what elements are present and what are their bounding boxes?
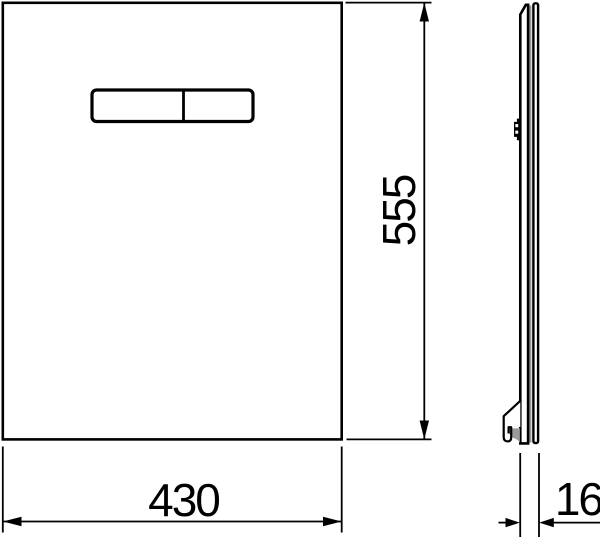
side-view [504,3,539,443]
arrowhead-up-icon [420,3,429,22]
carrier-strip-shading [529,6,531,443]
arrowhead-inward-left-icon [539,518,554,527]
dimension-depth: 16 [499,453,600,537]
technical-drawing-canvas: 555 430 [0,0,600,539]
dimension-label-depth: 16 [555,473,600,525]
front-view [3,3,342,440]
bottom-hook-bracket [504,401,521,443]
arrowhead-right-icon [323,517,342,526]
arrowhead-left-icon [3,517,22,526]
glass-plate-profile [520,5,528,444]
front-panel-outline [3,3,342,440]
technical-drawing: 555 430 [0,0,600,539]
dimension-height: 555 [346,3,432,440]
flush-button-panel [92,90,253,122]
dimension-label-width: 430 [148,474,219,526]
fixing-clip-body [514,119,520,141]
rear-rail-profile [533,3,538,443]
fixing-clip [514,119,520,141]
dimension-label-height: 555 [373,175,425,246]
arrowhead-down-icon [420,421,429,440]
clip-notch-top [515,124,518,127]
clip-notch-bottom [515,131,518,134]
dimension-width: 430 [3,447,342,533]
arrowhead-inward-right-icon [506,518,520,527]
